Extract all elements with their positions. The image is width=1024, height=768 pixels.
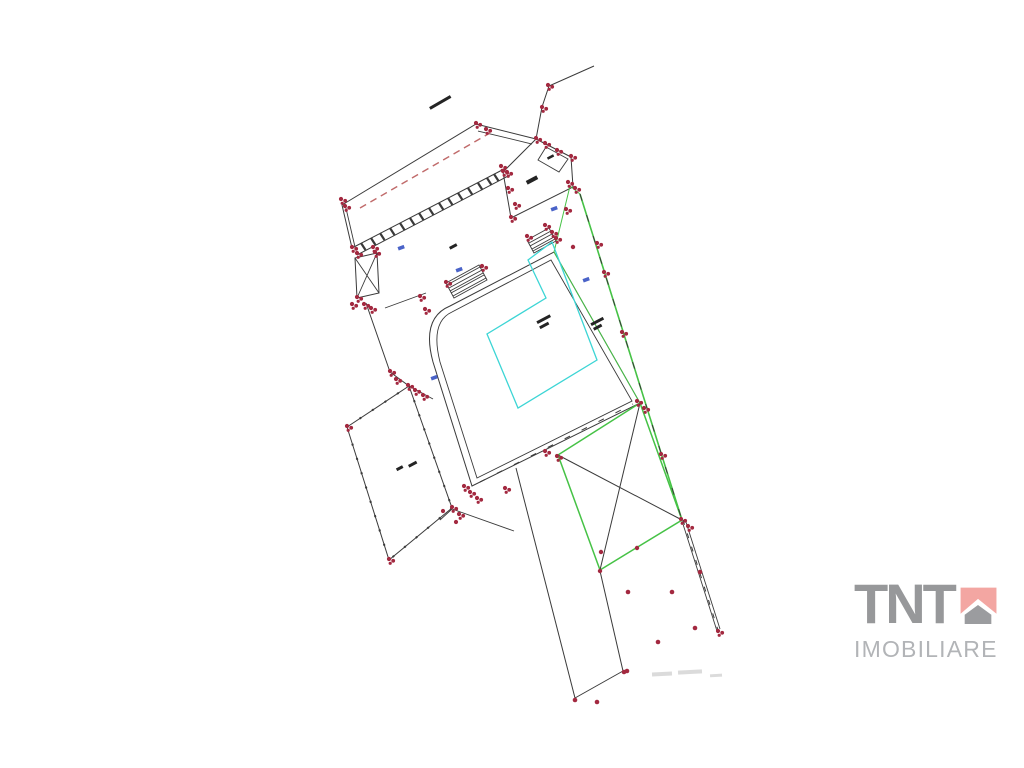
wall-strip [352,168,510,255]
brand-subtitle: IMOBILIARE [854,636,1004,663]
crossed-rectangle [355,253,379,298]
faint-smudges [652,669,722,677]
brand-logo: TNT IMOBILIARE [854,582,1004,663]
scatter-points [441,245,702,705]
red-dashed-line [360,133,490,208]
north-boundary-lines [342,66,594,248]
lower-left-parcel [347,386,452,560]
brand-name: TNT [854,582,954,626]
access-corridor [440,468,623,698]
green-zone-strip [554,186,682,520]
stair-symbol-upper [446,265,487,298]
brand-house-icon [957,584,998,625]
brand-logo-row: TNT [854,582,1004,630]
point-number-labels [397,206,589,381]
annotation-smudges [396,95,604,471]
